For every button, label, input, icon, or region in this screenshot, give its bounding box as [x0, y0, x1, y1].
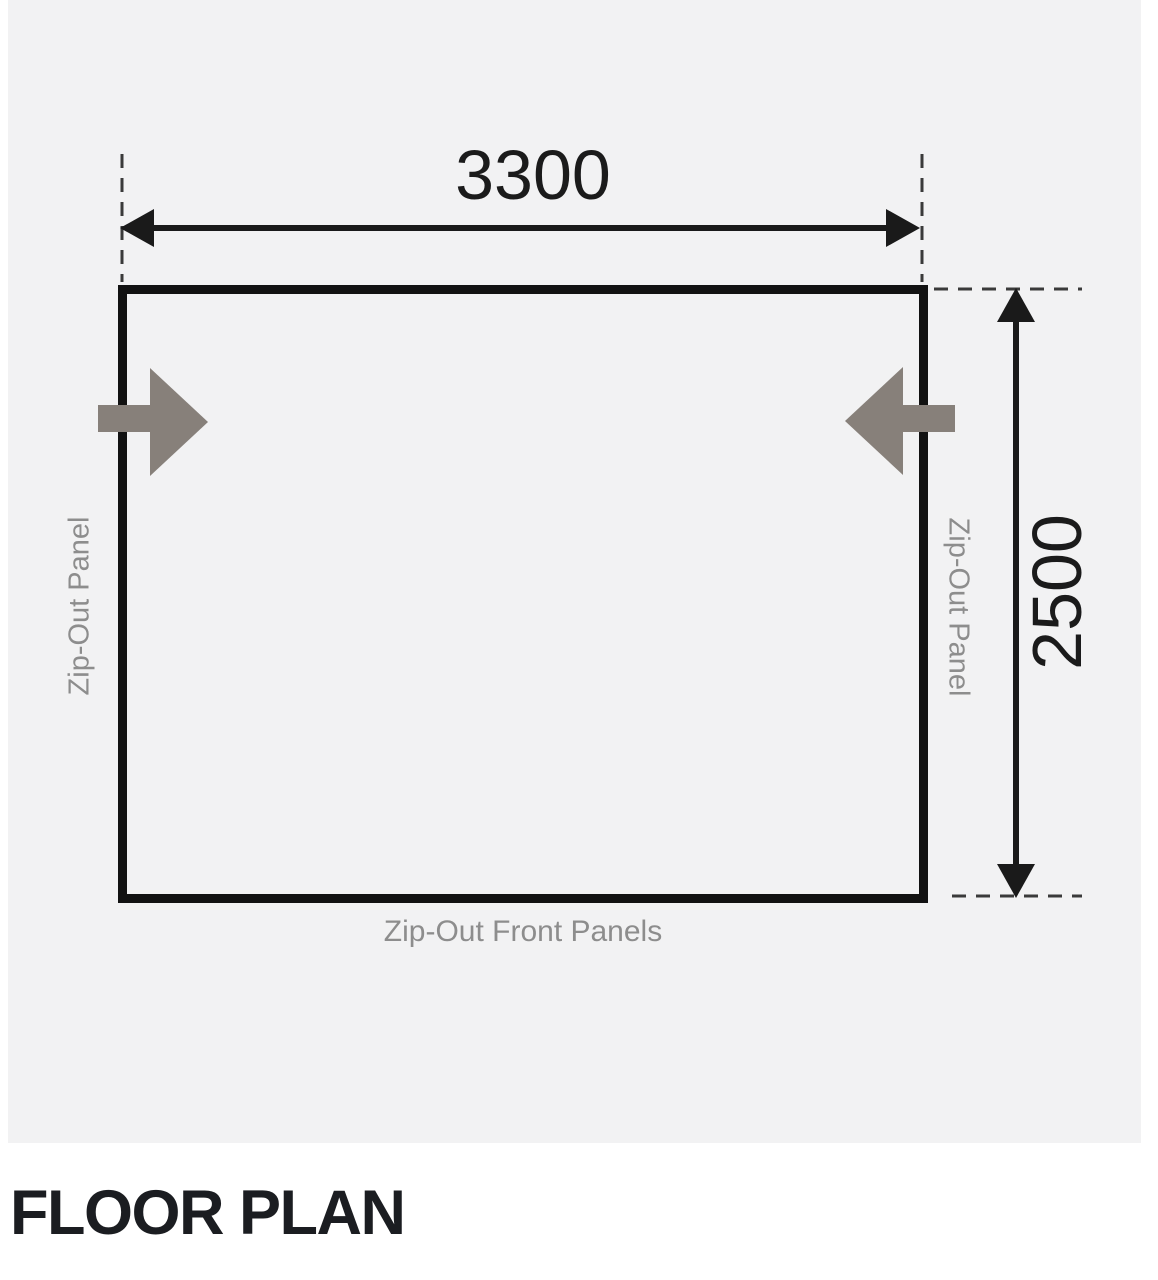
arrow-tail	[901, 405, 955, 432]
arrowhead-up-icon	[997, 288, 1035, 322]
front-zip-out-panels-label: Zip-Out Front Panels	[384, 914, 662, 950]
arrowhead-down-icon	[997, 864, 1035, 898]
depth-dimension-label: 2500	[1022, 514, 1092, 670]
left-zip-out-panel-label: Zip-Out Panel	[66, 517, 95, 696]
right-entrance-arrow-icon	[843, 364, 957, 478]
arrowhead-right-icon	[886, 209, 920, 247]
right-zip-out-panel-label: Zip-Out Panel	[944, 518, 973, 697]
arrowhead-left-icon	[120, 209, 154, 247]
floor-plan-rectangle	[118, 285, 928, 903]
arrow-head	[150, 368, 208, 476]
page: 3300 2500 Zip-Out Panel Zip-Out Panel Zi…	[0, 0, 1158, 1280]
arrow-tail	[98, 405, 152, 432]
arrow-head	[845, 367, 903, 475]
left-entrance-arrow-icon	[96, 366, 210, 478]
floor-plan-caption: FLOOR PLAN	[10, 1182, 404, 1245]
width-dimension-label: 3300	[433, 140, 633, 210]
